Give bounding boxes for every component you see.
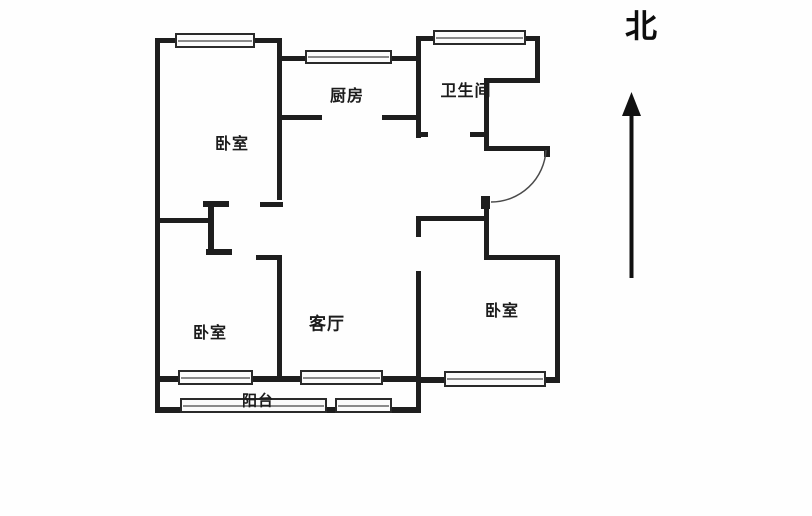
wall-bedroom1-right (277, 40, 282, 200)
wall-left-connector (155, 218, 208, 223)
wall-bathroom-jog (484, 78, 540, 83)
window-livingroom-bottom (300, 370, 383, 385)
window-balcony-right (335, 398, 392, 413)
floorplan-canvas: 卧室 厨房 卫生间 客厅 卧室 卧室 阳台 北 (0, 0, 812, 516)
wall-livingroom-right-upper (416, 216, 421, 237)
overlay-graphics (0, 0, 812, 516)
wall-bathroom-bottom-right (470, 132, 487, 137)
room-label-balcony: 阳台 (242, 390, 274, 411)
wall-entry-top (484, 146, 548, 151)
entry-door-arc (491, 150, 546, 202)
north-arrow-icon (622, 92, 641, 278)
window-kitchen-top (305, 50, 392, 64)
room-label-kitchen: 厨房 (330, 82, 364, 106)
wall-entry-nub (544, 146, 550, 157)
room-label-bedroom-right: 卧室 (485, 297, 519, 321)
compass-north-label: 北 (625, 1, 657, 47)
wall-bathroom-right-upper (535, 38, 540, 82)
wall-outer-left (155, 38, 160, 412)
wall-bedroom3-top (484, 255, 560, 260)
wall-bedroom1-door-tick (260, 202, 283, 207)
wall-pier (208, 201, 214, 255)
wall-livingroom-right-lower (416, 271, 421, 412)
room-label-bedroom-bottom-left: 卧室 (193, 319, 227, 343)
wall-bedroom2-right (277, 256, 282, 382)
wall-kitchen-right (416, 38, 421, 138)
wall-bedroom3-right (555, 258, 560, 382)
wall-kitchen-bottom-right (382, 115, 418, 120)
wall-pier-bottom-cap (206, 249, 232, 255)
room-label-living-room: 客厅 (309, 310, 345, 335)
room-label-bedroom-top-left: 卧室 (215, 130, 249, 154)
wall-hallway-top (416, 216, 489, 221)
window-bedroom2-bottom (178, 370, 253, 385)
window-bathroom-top (433, 30, 526, 45)
wall-entry-left (484, 205, 489, 260)
wall-kitchen-bottom-left (277, 115, 322, 120)
window-bedroom3-bottom (444, 371, 546, 387)
wall-bathroom-bottom-left (416, 132, 428, 137)
wall-pier-top-cap (203, 201, 229, 207)
room-label-bathroom: 卫生间 (440, 77, 491, 101)
window-bedroom1-top (175, 33, 255, 48)
